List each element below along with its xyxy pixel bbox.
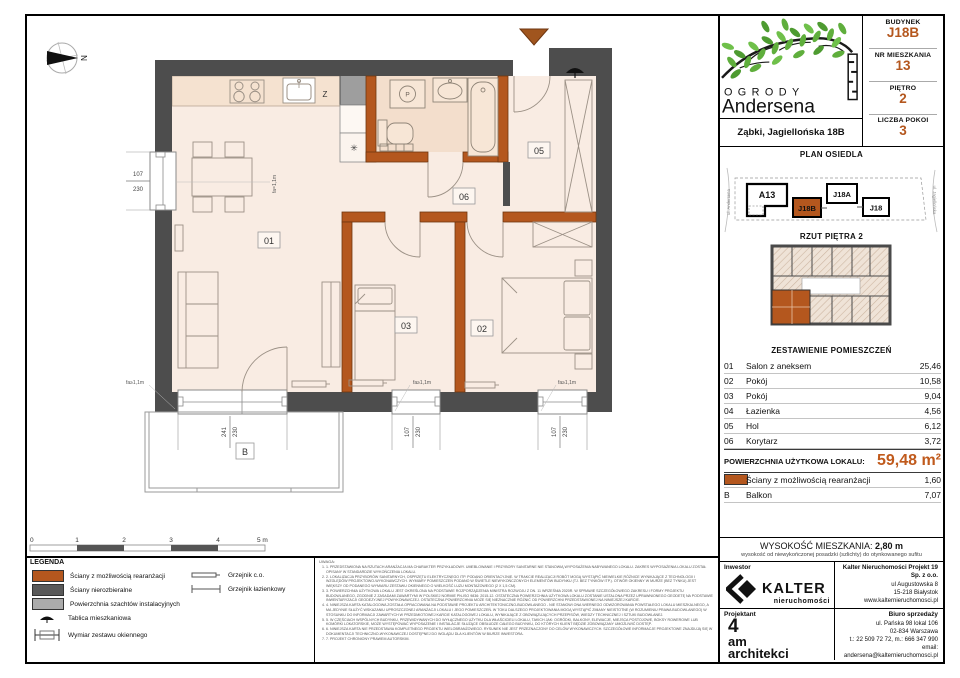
stat-liczba-pokoi: LICZBA POKOI 3 — [863, 117, 943, 139]
svg-text:230: 230 — [233, 426, 239, 437]
svg-text:3: 3 — [169, 537, 173, 544]
tablica-legend-icon — [32, 612, 62, 624]
note-item: 5. W CZĘŚCIACH WSPÓLNYCH BUDYNKU, PRZEWI… — [326, 618, 713, 627]
note-item: 4. NINIEJSZA KARTA KATALOGOWA ZOSTAŁA OP… — [326, 603, 713, 617]
kitchen-counter: Z — [172, 76, 340, 106]
orange-wall-swatch — [724, 474, 748, 485]
svg-text:230: 230 — [563, 426, 569, 437]
bathtub-icon — [468, 78, 498, 156]
kalter-sub: nieruchomości — [774, 598, 830, 605]
table-row: 01Salon z aneksem25,46 — [724, 359, 941, 374]
svg-text:4: 4 — [216, 537, 220, 544]
table-row-rearrangeable: Ściany z możliwością rearanżacji1,60 — [724, 473, 941, 488]
shaft-swatch — [32, 598, 64, 610]
legend-item-radiator-co: Grzejnik c.o. — [190, 570, 264, 580]
building-J18B-highlighted: J18B — [793, 198, 821, 217]
washbasin-icon — [433, 78, 467, 102]
height-label: WYSOKOŚĆ MIESZKANIA: — [760, 541, 873, 551]
fa-label-balcony: fa≥1,1m — [126, 380, 144, 386]
apartment-catalog-card: N Z — [0, 0, 960, 678]
legend: LEGENDA Ściany z możliwością rearanżacji… — [30, 559, 312, 566]
svg-text:230: 230 — [416, 426, 422, 437]
room-label-06: 06 — [453, 188, 475, 204]
apartment-stats: BUDYNEK J18B NR MIESZKANIA 13 PIĘTRO 2 L… — [863, 16, 943, 146]
inwestor-label: Inwestor — [724, 564, 751, 571]
notes-list: 1. PRZEDSTAWIONA NA RZUTACH ARANŻACJA MA… — [319, 565, 713, 642]
table-row: 02Pokój10,58 — [724, 374, 941, 389]
inwestor-company: Kalter Nieruchomości Projekt 19 Sp. z o.… — [838, 564, 938, 581]
street-left-label: ul. Andersena — [726, 189, 731, 215]
table-row: 03Pokój9,04 — [724, 389, 941, 404]
page-frame: N Z — [25, 14, 945, 664]
note-item: 1. PRZEDSTAWIONA NA RZUTACH ARANŻACJA MA… — [326, 565, 713, 574]
svg-text:0: 0 — [30, 537, 34, 544]
note-item: 6. NINIEJSZA KARTA NIE PRZEDSTAWIA KOMPL… — [326, 627, 713, 636]
hall-partition-wall — [503, 162, 510, 206]
floor-thumb-title: RZUT PIĘTRA 2 — [720, 232, 943, 241]
svg-text:230: 230 — [133, 187, 144, 193]
note-item: 7. PROJEKT CHRONIONY PRAWEM AUTORSKIM. — [326, 637, 713, 642]
height-value: 2,80 m — [875, 541, 903, 551]
scale-bar: 0 1 2 3 4 5 m — [30, 537, 268, 551]
dim-window-room03: 107 230 — [392, 414, 440, 450]
4am-architekci-logo: 4 am architekci — [728, 618, 789, 661]
building-J18: J18 — [863, 198, 889, 216]
brand-logo: OGRODY Andersena — [720, 16, 862, 118]
building-J18A: J18A — [827, 184, 857, 203]
kalter-logo-icon: KALTER nieruchomości — [726, 572, 832, 606]
stat-pietro: PIĘTRO 2 — [863, 85, 943, 107]
window-balcony-door — [178, 390, 287, 414]
legend-item-rearrangeable-walls: Ściany z możliwością rearanżacji — [32, 570, 165, 582]
table-row: 04Łazienka4,56 — [724, 404, 941, 419]
height-info: WYSOKOŚĆ MIESZKANIA: 2,80 m — [720, 541, 943, 551]
radiator-co-legend-icon — [190, 570, 222, 580]
thumb-highlighted-unit — [772, 290, 810, 324]
svg-text:107: 107 — [405, 426, 411, 437]
window-left — [150, 152, 176, 210]
fa-label-left: fa=1,1m — [272, 175, 278, 193]
total-area-row: POWIERZCHNIA UŻYTKOWA LOKALU: 59,48 m² — [724, 449, 941, 473]
tree-branch-logo-icon: OGRODY Andersena — [720, 16, 862, 116]
rooms-table: 01Salon z aneksem25,46 02Pokój10,58 03Po… — [724, 359, 941, 503]
notes-title: UWAGA: — [319, 559, 713, 564]
site-plan-map: ul. Andersena ul. Jagiellońska A13 J18B … — [721, 162, 942, 236]
project-address: Ząbki, Jagiellońska 18B — [720, 118, 862, 147]
note-item: 3. POWIERZCHNIA UŻYTKOWA LOKALU JEST OKR… — [326, 589, 713, 603]
room-label-05: 05 — [528, 142, 550, 158]
sales-email: email: andersena@kalternieruchomosci.pl — [838, 644, 938, 660]
vent-mark: ✳ — [350, 143, 358, 153]
kalter-logo: KALTER nieruchomości — [726, 572, 832, 611]
height-note: wysokość od niewykończonej posadzki (szl… — [720, 552, 943, 558]
stat-nr-mieszkania: NR MIESZKANIA 13 — [863, 52, 943, 74]
info-sidebar: OGRODY Andersena Ząbki, Jagiellońska 18B… — [718, 16, 943, 662]
dim-window-room02: 107 230 — [538, 414, 587, 450]
svg-text:03: 03 — [401, 321, 411, 331]
notes-block: UWAGA: 1. PRZEDSTAWIONA NA RZUTACH ARANŻ… — [319, 559, 713, 642]
installation-shaft: ✳ — [340, 70, 368, 162]
inwestor-web: www.kalternieruchomosci.pl — [838, 597, 938, 605]
svg-text:J18A: J18A — [833, 190, 852, 199]
svg-text:A13: A13 — [759, 190, 776, 200]
dark-wall-swatch — [32, 584, 64, 596]
table-row: 06Korytarz3,72 — [724, 434, 941, 449]
svg-text:B: B — [242, 447, 248, 457]
legend-item-shafts: Powierzchnia szachtów instalacyjnych — [32, 598, 180, 610]
window-room03 — [392, 390, 440, 414]
sales-office-contact: Biuro sprzedaży ul. Pańska 98 lokal 106 … — [838, 611, 938, 660]
dim-left-window: 107 230 — [126, 152, 150, 210]
total-area-label: POWIERZCHNIA UŻYTKOWA LOKALU: — [724, 457, 877, 466]
leaves — [721, 18, 848, 81]
stat-budynek: BUDYNEK J18B — [863, 19, 943, 41]
balcony-label: B — [236, 443, 254, 459]
legend-divider — [27, 556, 718, 558]
north-compass-icon: N — [46, 42, 88, 74]
dim-balcony-door: 241 230 — [178, 414, 287, 450]
legend-item-window-dim: Wymiar zestawu okiennego — [32, 627, 147, 643]
inwestor-address1: ul Augustowska 8 — [838, 581, 938, 589]
note-item: 2. LOKALIZACJA PRZYBORÓW SANITARNYCH, OS… — [326, 575, 713, 589]
svg-text:107: 107 — [552, 426, 558, 437]
entrance-arrow-icon — [520, 29, 548, 45]
kitchen-z-label: Z — [323, 90, 328, 99]
svg-text:02: 02 — [477, 324, 487, 334]
rooms-table-title: ZESTAWIENIE POMIESZCZEŃ — [720, 346, 943, 355]
svg-text:1: 1 — [75, 537, 79, 544]
svg-text:05: 05 — [534, 146, 544, 156]
washing-machine-icon: P — [390, 80, 425, 108]
table-row-balcony: B Balkon7,07 — [724, 488, 941, 503]
toilet-icon — [378, 120, 413, 146]
svg-text:06: 06 — [459, 192, 469, 202]
sales-phone: t.: 22 509 72 72, m.: 666 347 990 — [838, 636, 938, 644]
radiator-bathroom-legend-icon — [190, 584, 222, 594]
legend-notes-divider — [314, 556, 315, 662]
washer-p-label: P — [405, 92, 409, 99]
kalter-wordmark: KALTER — [762, 581, 826, 597]
sales-address2: 02-834 Warszawa — [838, 628, 938, 636]
fa-label-room03: fa≥1,1m — [413, 380, 431, 386]
window-room02 — [538, 390, 587, 414]
sales-address1: ul. Pańska 98 lokal 106 — [838, 620, 938, 628]
building-A13: A13 — [747, 184, 787, 216]
kitchen-sink-icon — [283, 78, 315, 103]
floor-plan-drawing: N Z — [27, 16, 718, 556]
svg-text:107: 107 — [133, 172, 144, 178]
room-label-02: 02 — [471, 320, 493, 336]
table-row: 05Hol6,12 — [724, 419, 941, 434]
svg-text:241: 241 — [222, 426, 228, 437]
site-plan-title: PLAN OSIEDLA — [720, 150, 943, 159]
legend-title: LEGENDA — [30, 559, 312, 566]
birch-trunk — [848, 54, 857, 99]
total-area-value: 59,48 m² — [877, 452, 941, 470]
svg-text:J18B: J18B — [798, 204, 817, 213]
sales-label: Biuro sprzedaży — [838, 611, 938, 620]
brand-line2: Andersena — [722, 96, 815, 116]
street-right-label: ul. Jagiellońska — [932, 186, 937, 215]
inwestor-address2: 15-218 Białystok — [838, 589, 938, 597]
inwestor-contact: Kalter Nieruchomości Projekt 19 Sp. z o.… — [838, 564, 938, 605]
svg-text:5 m: 5 m — [257, 537, 268, 544]
legend-item-radiator-bathroom: Grzejnik łazienkowy — [190, 584, 285, 594]
room-label-01: 01 — [258, 232, 280, 248]
window-dimension-legend-icon — [32, 627, 62, 643]
legend-item-fixed-walls: Ściany nierozbieralne — [32, 584, 132, 596]
svg-text:01: 01 — [264, 236, 274, 246]
svg-text:2: 2 — [122, 537, 126, 544]
north-label: N — [79, 55, 88, 61]
orange-wall-swatch — [32, 570, 64, 582]
room-label-03: 03 — [395, 317, 417, 333]
legend-item-tablica: Tablica mieszkaniowa — [32, 612, 131, 624]
svg-text:J18: J18 — [870, 204, 883, 213]
fa-label-room02: fa≥1,1m — [558, 380, 576, 386]
floor-thumbnail — [770, 244, 892, 328]
